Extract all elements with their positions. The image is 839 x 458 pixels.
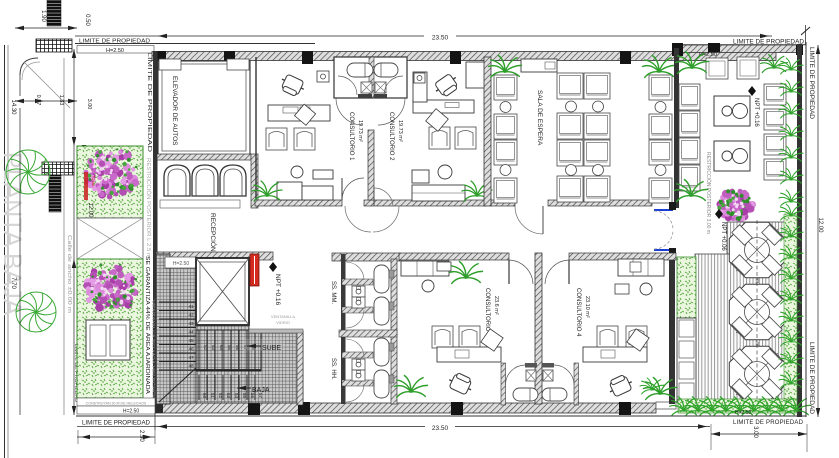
svg-text:54: 54	[234, 393, 239, 399]
svg-text:BAJA: BAJA	[252, 387, 270, 394]
svg-text:46: 46	[188, 347, 194, 352]
svg-text:VENTANILLA: VENTANILLA	[271, 314, 295, 319]
svg-text:53: 53	[226, 393, 231, 399]
svg-text:H=2.50: H=2.50	[123, 409, 139, 415]
svg-text:NPT +0.16: NPT +0.16	[274, 274, 281, 306]
svg-text:RECEPCIÓN: RECEPCIÓN	[209, 213, 218, 252]
svg-text:3.00: 3.00	[86, 99, 92, 110]
svg-text:52: 52	[218, 393, 223, 399]
svg-text:LIMITE DE PROPIEDAD: LIMITE DE PROPIEDAD	[808, 342, 814, 415]
svg-text:VENTANILLA SO MOA HELECHOS: VENTANILLA SO MOA HELECHOS	[151, 300, 156, 401]
svg-text:43: 43	[188, 321, 194, 326]
svg-text:LIMITE DE PROPIEDAD: LIMITE DE PROPIEDAD	[79, 39, 150, 45]
svg-text:NPT +0.06: NPT +0.06	[720, 222, 726, 251]
svg-text:12.00: 12.00	[87, 202, 93, 218]
svg-text:3.00: 3.00	[752, 426, 758, 438]
svg-text:RESTRICCIÓN POSTERIOR L 2.5 m: RESTRICCIÓN POSTERIOR L 2.5 m	[145, 158, 152, 258]
svg-text:55: 55	[242, 393, 247, 399]
svg-text:H=2.50: H=2.50	[106, 48, 124, 54]
svg-text:1.33: 1.33	[58, 95, 64, 106]
svg-text:54: 54	[219, 345, 224, 351]
svg-text:TOMA: TOMA	[91, 175, 96, 187]
svg-text:Calle de ancho ±0.00 m: Calle de ancho ±0.00 m	[66, 235, 72, 313]
svg-text:PLANTA BAJA: PLANTA BAJA	[0, 152, 26, 316]
svg-text:50: 50	[202, 393, 207, 399]
svg-text:42: 42	[188, 313, 194, 318]
svg-text:VIDRIO: VIDRIO	[276, 320, 290, 325]
svg-text:51: 51	[210, 393, 215, 399]
svg-text:LIMITE DE PROPIEDAD: LIMITE DE PROPIEDAD	[733, 420, 804, 426]
svg-text:H=2.50: H=2.50	[735, 410, 751, 416]
svg-text:0.50: 0.50	[84, 14, 90, 26]
svg-text:45: 45	[188, 338, 194, 343]
svg-text:44: 44	[188, 330, 194, 335]
svg-text:CONSULTORIO 1: CONSULTORIO 1	[348, 112, 354, 161]
svg-text:23.6 m²: 23.6 m²	[493, 296, 499, 315]
svg-text:CONSULTORIO 4: CONSULTORIO 4	[575, 288, 581, 337]
svg-text:52: 52	[203, 345, 208, 351]
svg-text:LIMITE DE PROPIEDAD: LIMITE DE PROPIEDAD	[808, 47, 814, 120]
svg-text:19.73 m²: 19.73 m²	[357, 120, 363, 142]
svg-text:2.50: 2.50	[138, 430, 144, 442]
svg-text:ELEVADOR DE AUTOS: ELEVADOR DE AUTOS	[171, 76, 178, 146]
svg-text:47: 47	[188, 355, 194, 360]
svg-text:23.10 m²: 23.10 m²	[584, 296, 590, 318]
svg-text:0.57: 0.57	[35, 95, 41, 106]
svg-text:NPT +0.16: NPT +0.16	[753, 98, 759, 127]
svg-text:LIMITE DE PROPIEDAD: LIMITE DE PROPIEDAD	[82, 421, 151, 427]
svg-text:56: 56	[235, 345, 240, 351]
svg-text:CONSULTORIO 2: CONSULTORIO 2	[388, 112, 394, 161]
svg-text:RESTRICCIÓN POSTERIOR 3.00 m: RESTRICCIÓN POSTERIOR 3.00 m	[705, 152, 712, 234]
svg-text:SE GARANTIZA 44% DE ÁREA AJARD: SE GARANTIZA 44% DE ÁREA AJARDINADA	[144, 256, 151, 394]
svg-text:LIMITE DE PROPIEDAD: LIMITE DE PROPIEDAD	[733, 40, 805, 46]
svg-text:41: 41	[188, 304, 194, 309]
svg-text:7.70: 7.70	[10, 277, 16, 289]
svg-text:55: 55	[227, 345, 232, 351]
svg-text:SALA DE ESPERA: SALA DE ESPERA	[536, 90, 543, 146]
svg-text:48: 48	[188, 364, 194, 369]
svg-text:SS. HH.: SS. HH.	[330, 358, 336, 380]
svg-text:14.30: 14.30	[10, 99, 16, 115]
svg-text:19.73 m²: 19.73 m²	[397, 120, 403, 142]
svg-text:CONSTRUYAN 30 M DE HELECHOS: CONSTRUYAN 30 M DE HELECHOS	[86, 402, 147, 406]
svg-text:53: 53	[211, 345, 216, 351]
svg-text:LIMITE DE PROPIEDAD: LIMITE DE PROPIEDAD	[146, 52, 152, 152]
svg-text:1.90: 1.90	[40, 10, 46, 22]
svg-text:SS. MM.: SS. MM.	[330, 281, 336, 304]
svg-text:H=2.50: H=2.50	[173, 261, 189, 267]
svg-text:23.50: 23.50	[432, 35, 449, 42]
svg-text:23.50: 23.50	[432, 425, 449, 432]
svg-text:SUBE: SUBE	[262, 345, 281, 352]
